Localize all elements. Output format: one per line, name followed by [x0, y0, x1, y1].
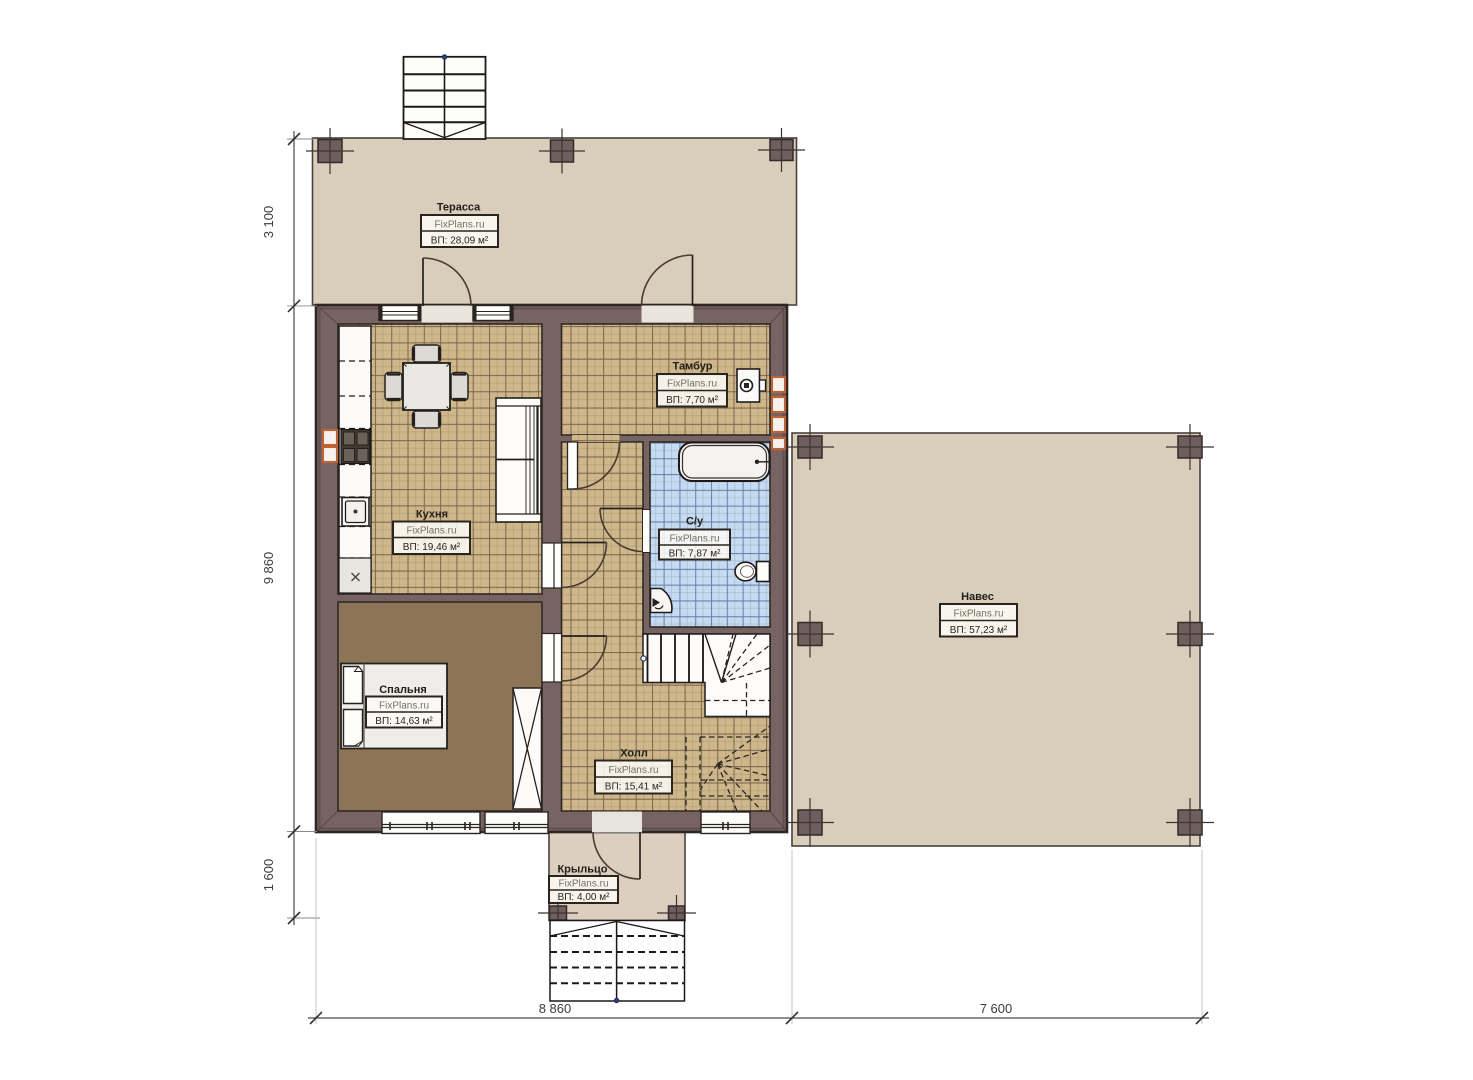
- svg-text:ВП: 15,41 м²: ВП: 15,41 м²: [605, 782, 663, 793]
- svg-text:3 100: 3 100: [261, 206, 276, 239]
- svg-text:FixPlans.ru: FixPlans.ru: [379, 701, 429, 712]
- svg-text:ВП: 4,00 м²: ВП: 4,00 м²: [558, 892, 611, 903]
- svg-text:FixPlans.ru: FixPlans.ru: [434, 220, 484, 231]
- svg-text:ВП: 14,63 м²: ВП: 14,63 м²: [375, 716, 433, 727]
- svg-text:9 860: 9 860: [261, 552, 276, 585]
- svg-text:8 860: 8 860: [539, 1001, 572, 1016]
- svg-text:FixPlans.ru: FixPlans.ru: [406, 526, 456, 537]
- svg-text:FixPlans.ru: FixPlans.ru: [669, 534, 719, 545]
- svg-text:FixPlans.ru: FixPlans.ru: [558, 879, 608, 890]
- svg-text:Спальня: Спальня: [379, 684, 427, 696]
- svg-text:Терасса: Терасса: [437, 202, 481, 214]
- svg-text:ВП: 28,09 м²: ВП: 28,09 м²: [431, 236, 489, 247]
- svg-text:Холл: Холл: [620, 748, 648, 760]
- svg-text:ВП: 7,70 м²: ВП: 7,70 м²: [666, 395, 719, 406]
- svg-text:ВП: 7,87 м²: ВП: 7,87 м²: [669, 549, 722, 560]
- svg-text:FixPlans.ru: FixPlans.ru: [953, 609, 1003, 620]
- svg-text:FixPlans.ru: FixPlans.ru: [667, 379, 717, 390]
- svg-text:Кухня: Кухня: [416, 509, 448, 521]
- svg-text:7 600: 7 600: [980, 1001, 1013, 1016]
- svg-text:1 600: 1 600: [261, 859, 276, 892]
- svg-text:Крыльцо: Крыльцо: [557, 864, 607, 876]
- svg-text:FixPlans.ru: FixPlans.ru: [608, 765, 658, 776]
- svg-text:С/у: С/у: [686, 516, 704, 528]
- svg-text:Тамбур: Тамбур: [673, 361, 713, 373]
- svg-text:ВП: 19,46 м²: ВП: 19,46 м²: [403, 542, 461, 553]
- svg-text:ВП: 57,23 м²: ВП: 57,23 м²: [950, 625, 1008, 636]
- svg-text:Навес: Навес: [961, 591, 994, 603]
